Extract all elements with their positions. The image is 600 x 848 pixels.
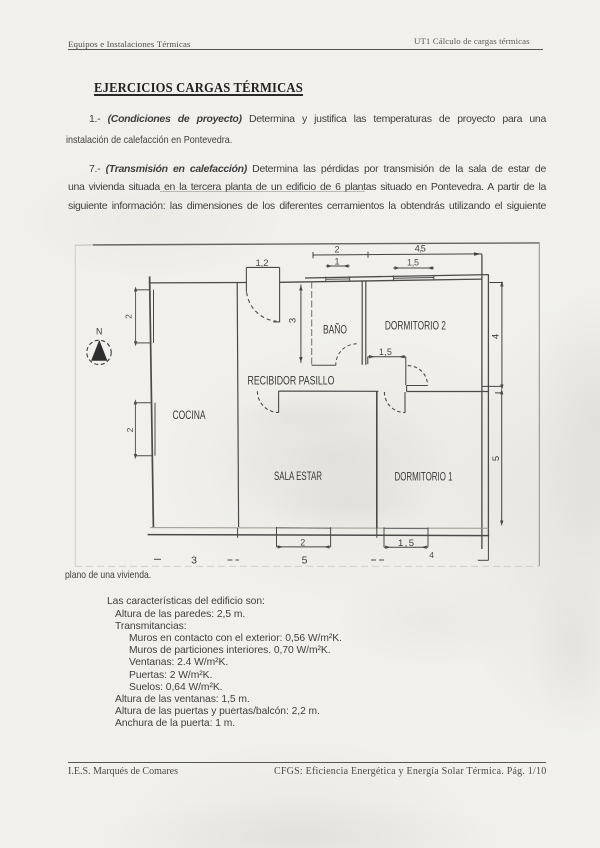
svg-text:4,5: 4,5 <box>415 243 426 253</box>
svg-text:2: 2 <box>124 314 134 319</box>
svg-text:5: 5 <box>302 555 308 567</box>
svg-text:RECIBIDOR PASILLO: RECIBIDOR PASILLO <box>248 376 335 388</box>
svg-text:2: 2 <box>125 427 135 432</box>
svg-text:1,5: 1,5 <box>379 347 392 357</box>
svg-text:COCINA: COCINA <box>173 410 206 422</box>
svg-text:BAÑO: BAÑO <box>323 324 347 337</box>
svg-text:1: 1 <box>334 257 339 267</box>
svg-text:4: 4 <box>490 334 501 339</box>
svg-text:1,5: 1,5 <box>398 538 414 549</box>
svg-text:3: 3 <box>288 318 299 323</box>
svg-text:1,5: 1,5 <box>407 257 419 267</box>
svg-text:1,2: 1,2 <box>256 258 269 269</box>
svg-text:DORMITORIO 2: DORMITORIO 2 <box>385 321 446 333</box>
svg-text:N: N <box>96 327 102 337</box>
svg-text:SALA ESTAR: SALA ESTAR <box>274 471 322 483</box>
svg-text:4: 4 <box>429 550 434 560</box>
svg-text:3: 3 <box>191 554 197 566</box>
svg-text:DORMITORIO 1: DORMITORIO 1 <box>395 472 453 484</box>
svg-text:5: 5 <box>491 456 502 461</box>
svg-text:2: 2 <box>334 245 339 255</box>
svg-text:2: 2 <box>300 537 305 547</box>
